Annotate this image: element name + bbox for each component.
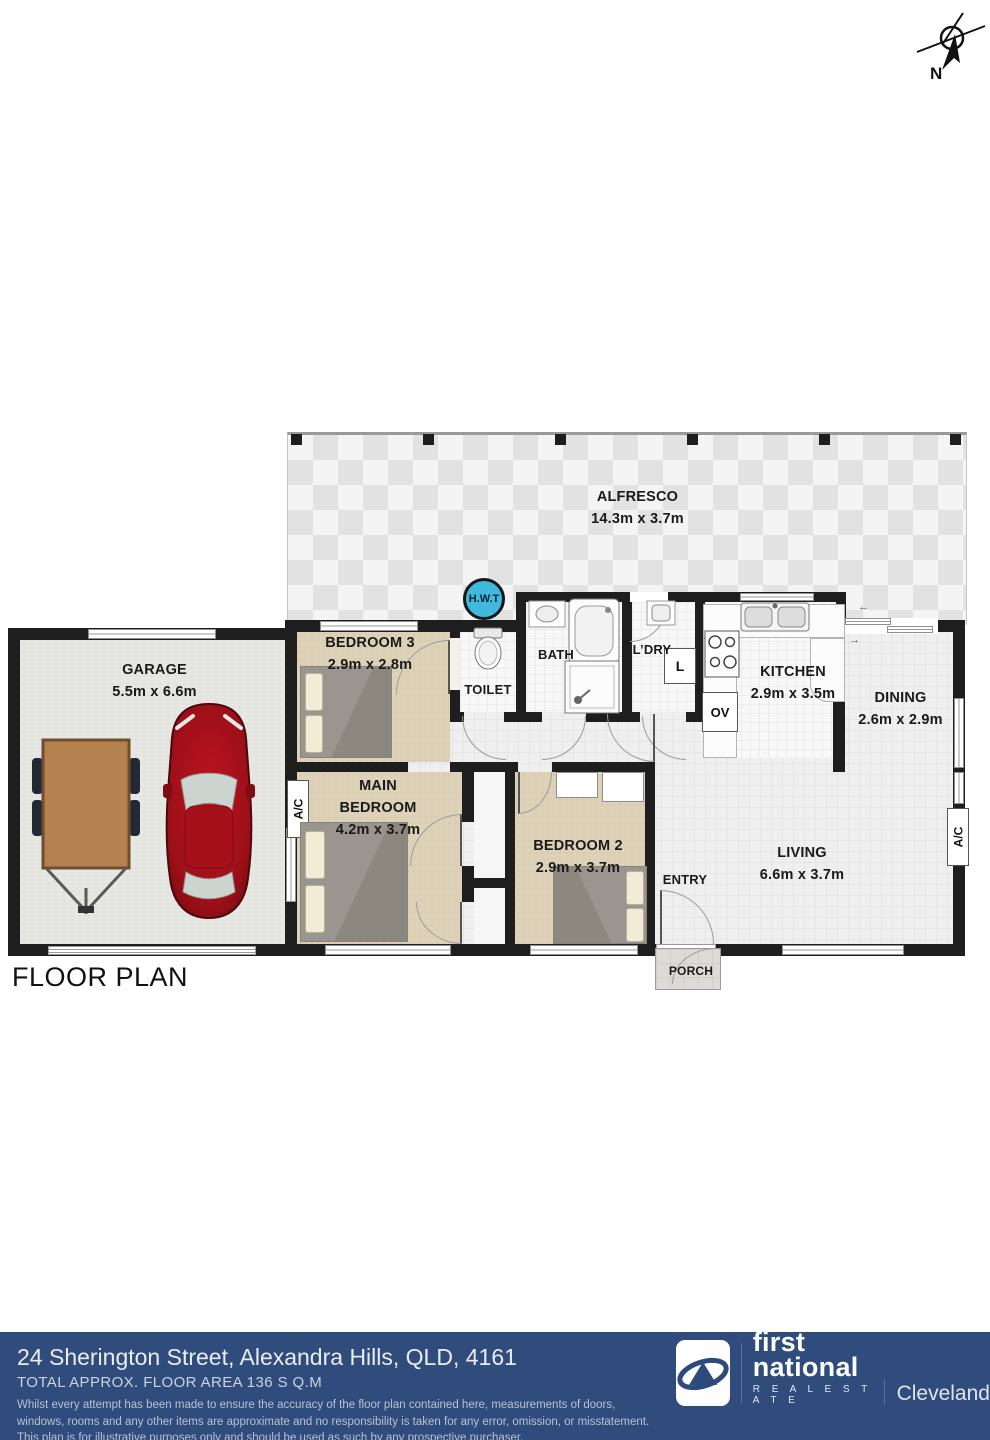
laundry-sink: [646, 600, 676, 626]
window: [782, 945, 904, 955]
wall-segment: [552, 762, 655, 772]
agency-logo-mark: [676, 1346, 730, 1400]
wall-segment: [462, 772, 474, 822]
north-label: N: [930, 64, 942, 84]
deck-post: [687, 434, 698, 445]
floorplan-page: N ALFRESCO 14.3m x 3.7m: [0, 0, 990, 1440]
wall-segment: [504, 712, 542, 722]
disclaimer-line: This plan is for illustrative purposes o…: [17, 1430, 990, 1440]
ac-unit: A/C: [947, 808, 969, 866]
robe-nook-floor: [474, 772, 505, 944]
window: [740, 593, 814, 601]
toilet-fixture: [468, 626, 508, 672]
deck-post: [819, 434, 830, 445]
car: [163, 700, 255, 924]
brand-divider: [884, 1379, 885, 1405]
agency-logo: [676, 1340, 730, 1406]
wall-segment: [287, 762, 408, 772]
pillow: [626, 908, 644, 942]
wall-segment: [450, 762, 474, 772]
wardrobe: [602, 772, 644, 802]
brand-divider: [741, 1343, 742, 1403]
pillow: [305, 673, 323, 711]
bathroom-sink: [528, 600, 566, 628]
wall-segment: [474, 878, 505, 888]
disclaimer-line: windows, rooms and any other items are a…: [17, 1414, 990, 1431]
room-label-dining: DINING 2.6m x 2.9m: [843, 688, 958, 732]
slide-arrow-right: →: [849, 634, 860, 646]
wall-segment: [8, 628, 20, 956]
hot-water-tank: H.W.T: [463, 578, 505, 620]
oven: OV: [702, 692, 738, 732]
sliding-door-panel: [845, 618, 891, 625]
room-label-toilet: TOILET: [452, 680, 524, 700]
room-label-alfresco: ALFRESCO 14.3m x 3.7m: [550, 487, 725, 531]
wall-segment: [462, 866, 474, 902]
deck-post: [555, 434, 566, 445]
room-label-laundry: L’DRY: [612, 640, 692, 660]
deck-post: [423, 434, 434, 445]
room-label-entry: ENTRY: [652, 870, 718, 890]
wardrobe: [556, 772, 598, 798]
window: [286, 828, 296, 902]
brand-tagline: R E A L E S T A T E: [753, 1384, 872, 1406]
pillow: [305, 715, 323, 753]
deck-post: [291, 434, 302, 445]
brand-office: Cleveland: [897, 1382, 990, 1406]
kitchen-sink: [740, 602, 810, 632]
wall-segment: [516, 592, 526, 632]
room-label-main-bedroom: MAIN BEDROOM 4.2m x 3.7m: [322, 776, 434, 841]
room-label-kitchen: KITCHEN 2.9m x 3.5m: [738, 662, 848, 706]
agency-brand: first national R E A L E S T A T E Cleve…: [676, 1338, 990, 1406]
shower: [564, 660, 620, 714]
garage-door: [48, 946, 256, 955]
slide-arrow-left: ←: [858, 601, 869, 613]
brand-wordmark: first national R E A L E S T A T E: [753, 1330, 872, 1406]
window: [88, 629, 216, 639]
room-label-living: LIVING 6.6m x 3.7m: [722, 843, 882, 887]
room-label-bedroom2: BEDROOM 2 2.9m x 3.7m: [512, 836, 644, 880]
pillow: [305, 885, 325, 933]
room-label-bedroom3: BEDROOM 3 2.9m x 2.8m: [295, 633, 445, 677]
bed: [300, 666, 392, 758]
wall-segment: [474, 762, 518, 772]
trailer: [30, 738, 142, 920]
window: [530, 945, 638, 955]
room-label-garage: GARAGE 5.5m x 6.6m: [72, 660, 237, 704]
cooktop: [704, 630, 740, 678]
brand-word-national: national: [753, 1355, 872, 1380]
window: [325, 945, 451, 955]
north-compass-icon: [914, 10, 988, 72]
room-label-porch: PORCH: [662, 962, 720, 980]
room-label-bath: BATH: [520, 645, 592, 665]
plan-title: FLOOR PLAN: [12, 962, 188, 993]
window: [954, 772, 964, 804]
sliding-door-panel: [887, 626, 933, 633]
window: [320, 621, 418, 631]
deck-post: [950, 434, 961, 445]
